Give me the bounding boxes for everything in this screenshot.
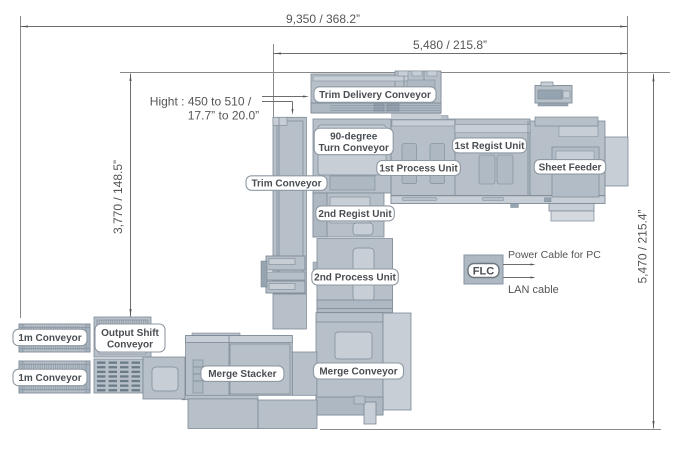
svg-text:1st Regist Unit: 1st Regist Unit [454, 141, 525, 152]
svg-text:17.7” to 20.0”: 17.7” to 20.0” [188, 109, 259, 123]
svg-text:2nd Process Unit: 2nd Process Unit [314, 273, 396, 284]
svg-text:Merge Conveyor: Merge Conveyor [319, 367, 397, 378]
svg-text:5,470 / 215.4”: 5,470 / 215.4” [636, 209, 650, 283]
svg-text:Hight : 450 to 510 /: Hight : 450 to 510 / [150, 95, 252, 109]
svg-text:1m Conveyor: 1m Conveyor [18, 333, 81, 344]
svg-text:1st Process Unit: 1st Process Unit [379, 164, 458, 175]
svg-text:90-degree: 90-degree [330, 131, 378, 142]
svg-text:Trim Delivery Conveyor: Trim Delivery Conveyor [319, 90, 431, 101]
svg-text:Trim Conveyor: Trim Conveyor [251, 179, 321, 190]
svg-text:9,350 / 368.2”: 9,350 / 368.2” [286, 12, 360, 26]
svg-text:FLC: FLC [473, 266, 494, 278]
svg-text:Power Cable for PC: Power Cable for PC [508, 249, 601, 261]
svg-text:2nd Regist Unit: 2nd Regist Unit [318, 209, 392, 220]
svg-text:5,480 / 215.8”: 5,480 / 215.8” [413, 38, 487, 52]
svg-text:Merge Stacker: Merge Stacker [208, 369, 276, 380]
svg-text:Conveyor: Conveyor [107, 339, 153, 350]
svg-text:3,770 / 148.5”: 3,770 / 148.5” [111, 160, 125, 234]
svg-text:Output Shift: Output Shift [101, 328, 159, 339]
svg-text:LAN cable: LAN cable [508, 284, 559, 296]
svg-text:Sheet Feeder: Sheet Feeder [539, 162, 602, 173]
svg-text:1m Conveyor: 1m Conveyor [18, 373, 81, 384]
svg-text:Turn Conveyor: Turn Conveyor [319, 143, 389, 154]
